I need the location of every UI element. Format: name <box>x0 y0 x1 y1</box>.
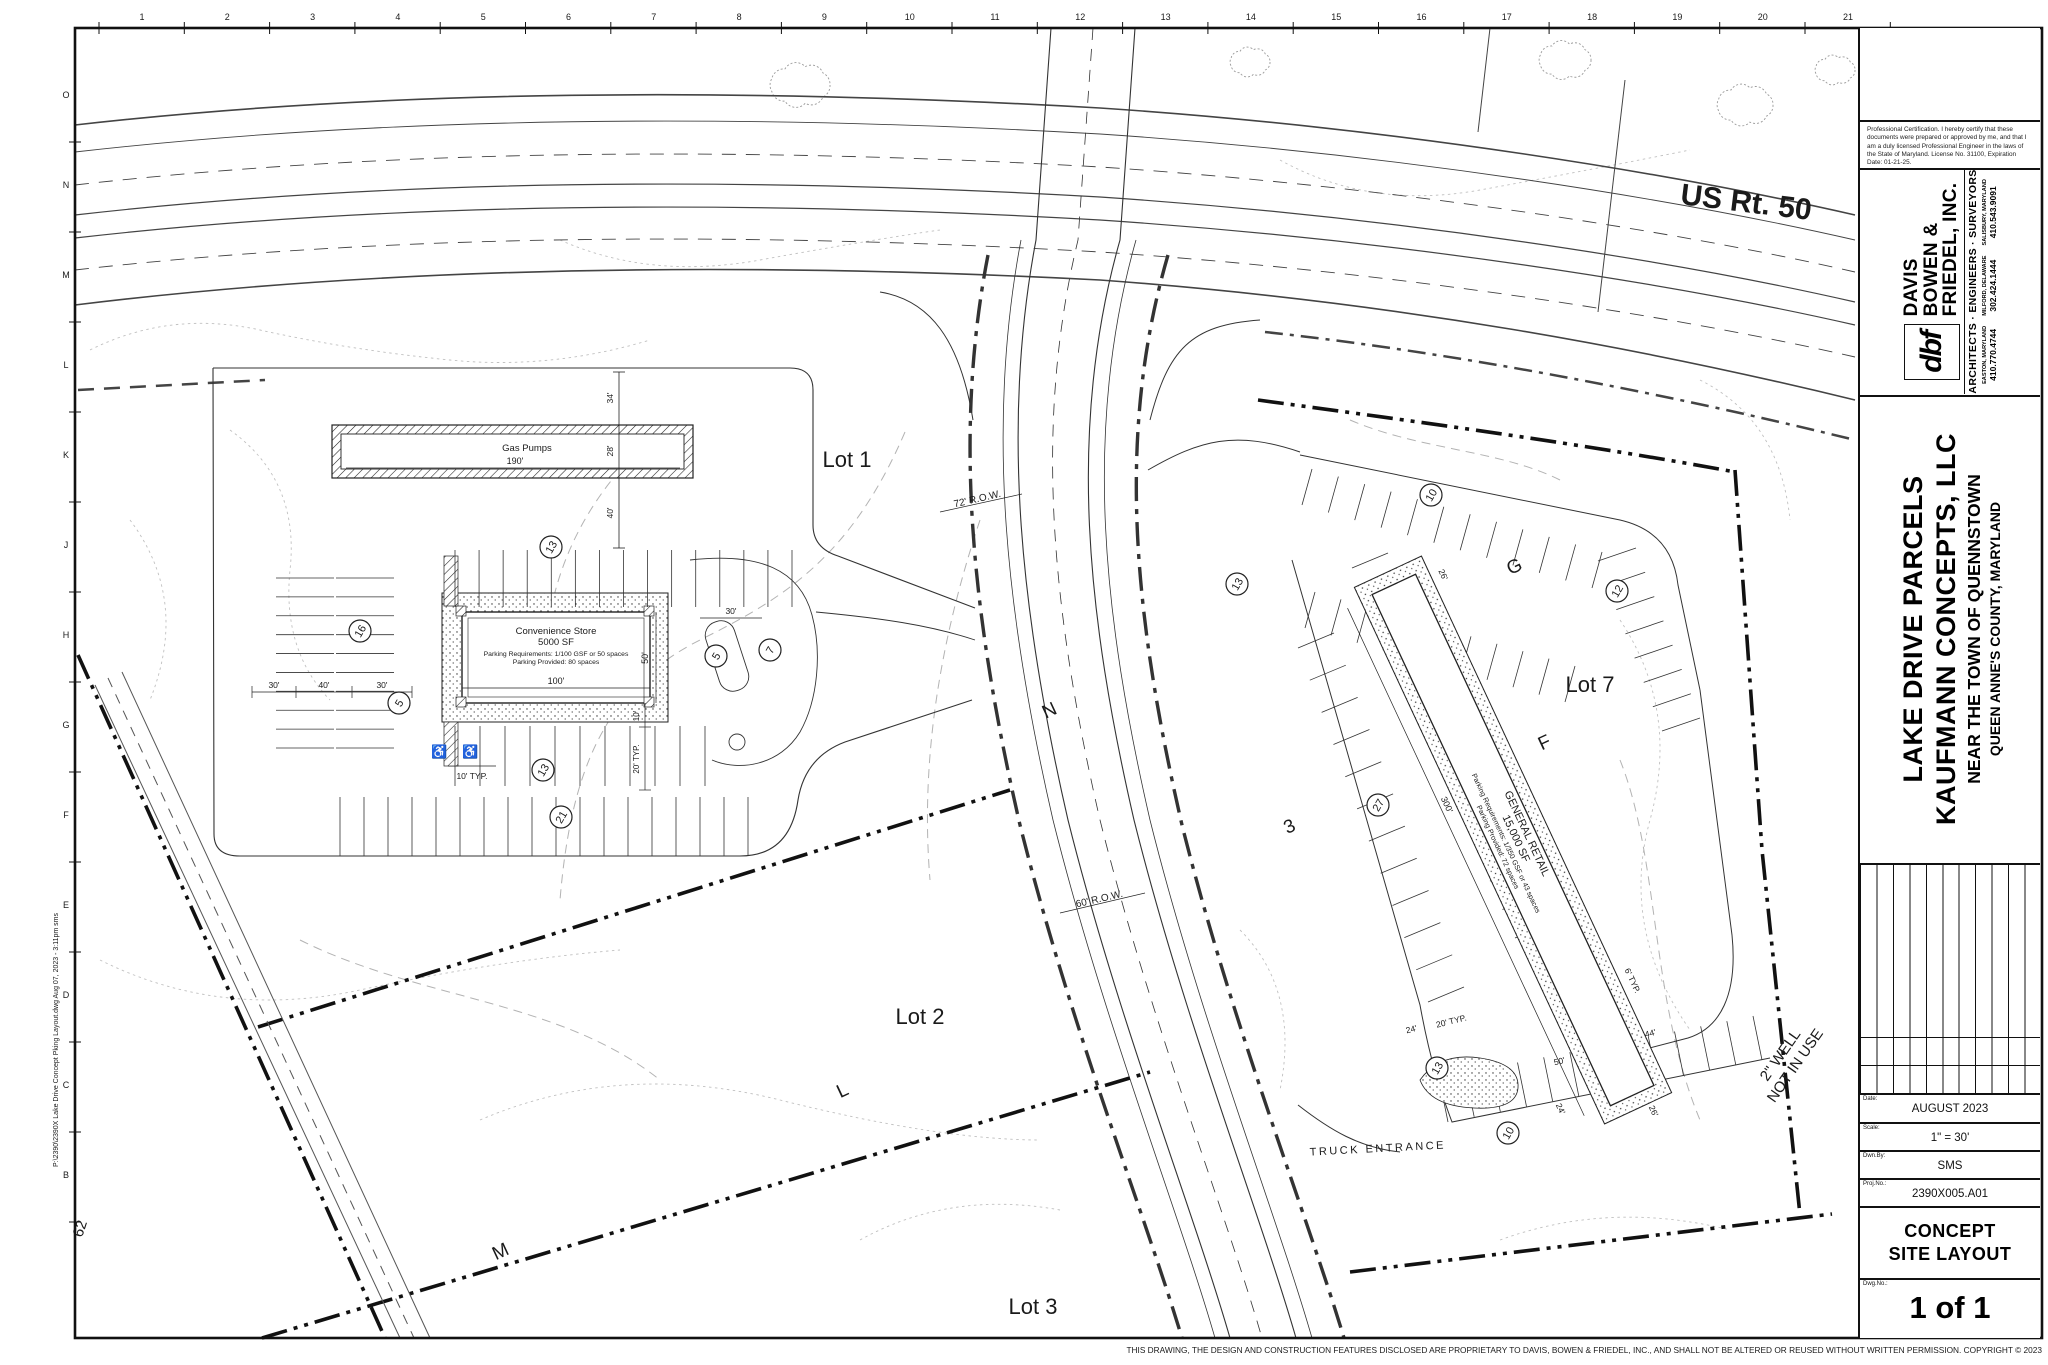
crosswalk-hatch-top <box>444 556 458 606</box>
convenience-store-building: Convenience Store 5000 SF Parking Requir… <box>442 593 668 722</box>
scale-label: Scale: <box>1863 1125 1880 1131</box>
border-col-number: 12 <box>1075 12 1085 22</box>
alignment-letter: 3 <box>1280 815 1298 839</box>
dim-50b: 50' <box>1553 1055 1567 1067</box>
border-col-number: 8 <box>737 12 742 22</box>
sheet-title-line2: SITE LAYOUT <box>1889 1244 2012 1265</box>
border-column-numbers: 123456789101112131415161718192021 <box>139 12 1853 22</box>
dim-10typ: 10' TYP. <box>456 771 487 781</box>
border-row-letter: K <box>63 450 69 460</box>
firm-name-3: FRIEDEL, INC. <box>1941 183 1960 317</box>
keynote-bubbles: 13165571321131012271310 <box>349 484 1628 1144</box>
file-path-note: P:\2390\2390X Lake Drive Concept Pking L… <box>53 913 60 1167</box>
certification-text: Professional Certification. I hereby cer… <box>1860 122 2040 172</box>
store-name: Convenience Store <box>516 626 597 637</box>
office-phone: 410.770.4744 <box>1988 326 1998 384</box>
store-parking-req: Parking Requirements: 1/100 GSF or 50 sp… <box>484 651 629 658</box>
dim-gas-length: 190' <box>507 456 524 466</box>
border-col-number: 5 <box>481 12 486 22</box>
dim-44: 44' <box>1644 1027 1658 1039</box>
handicap-icon: ♿ <box>431 744 447 759</box>
firm-name-2: BOWEN & <box>1922 183 1941 317</box>
project-number-label: Proj.No.: <box>1863 1181 1886 1187</box>
office-city: EASTON, MARYLAND <box>1982 326 1988 384</box>
border-row-letter: G <box>62 720 69 730</box>
drawing-number-label: Dwg.No.: <box>1863 1281 1888 1287</box>
office-city: SALISBURY, MARYLAND <box>1982 179 1988 245</box>
project-title-box: LAKE DRIVE PARCELS KAUFMANN CONCEPTS, LL… <box>1860 395 2040 863</box>
dim-6typ: 6' TYP. <box>1623 967 1643 995</box>
alignment-letter: M <box>489 1239 512 1265</box>
project-location-line1: NEAR THE TOWN OF QUENNSTOWN <box>1964 474 1985 784</box>
drawn-by-row: Dwn.By: SMS <box>1860 1150 2040 1178</box>
drawing-sheet: Gas Pumps 190' 34' 28' 40' Convenience S… <box>0 0 2048 1365</box>
border-col-number: 13 <box>1161 12 1171 22</box>
dim-100: 100' <box>548 676 565 686</box>
retail-building: GENERAL RETAIL 15,000 SF Parking Require… <box>1341 549 1694 1144</box>
tree-outline <box>1717 84 1773 126</box>
date-label: Date: <box>1863 1096 1877 1102</box>
handicap-icon: ♿ <box>462 744 478 759</box>
lot3-label: Lot 3 <box>1009 1294 1058 1319</box>
island-circle <box>729 734 745 750</box>
firm-offices: EASTON, MARYLAND 410.770.4744 MILFORD, D… <box>1982 179 1998 384</box>
border-row-letter: M <box>62 270 70 280</box>
office-phone: 410.543.9091 <box>1988 179 1998 245</box>
border-row-letter: L <box>63 360 68 370</box>
footer-disclaimer: THIS DRAWING, THE DESIGN AND CONSTRUCTIO… <box>1126 1345 2042 1355</box>
svg-text:72' R.O.W.: 72' R.O.W. <box>953 489 1002 511</box>
border-col-number: 17 <box>1502 12 1512 22</box>
drawn-by-value: SMS <box>1860 1160 2040 1172</box>
date-row: Date: AUGUST 2023 <box>1860 1093 2040 1122</box>
border-col-number: 20 <box>1758 12 1768 22</box>
lot1-label: Lot 1 <box>823 447 872 472</box>
border-col-number: 4 <box>395 12 400 22</box>
border-col-number: 7 <box>651 12 656 22</box>
alignment-letter: G <box>1504 554 1526 579</box>
border-col-number: 9 <box>822 12 827 22</box>
drawn-by-label: Dwn.By: <box>1863 1153 1885 1159</box>
lake-drive-road <box>880 28 1344 1338</box>
scale-row: Scale: 1" = 30' <box>1860 1122 2040 1150</box>
contour-62-label: 62 <box>70 1218 91 1239</box>
border-col-number: 14 <box>1246 12 1256 22</box>
dim-20typ-b: 20' TYP. <box>1435 1012 1468 1029</box>
store-area: 5000 SF <box>538 637 574 648</box>
dim-28: 28' <box>605 445 615 456</box>
dbf-logo: dbf <box>1904 324 1960 380</box>
parking-stalls <box>276 469 1762 1122</box>
alignment-letter: L <box>833 1079 851 1103</box>
border-col-number: 2 <box>225 12 230 22</box>
border-row-letter: O <box>62 90 69 100</box>
border-row-letter: C <box>63 1080 70 1090</box>
border-col-number: 18 <box>1587 12 1597 22</box>
title-block: Professional Certification. I hereby cer… <box>1858 28 2040 1338</box>
border-col-number: 10 <box>905 12 915 22</box>
certification-box: Professional Certification. I hereby cer… <box>1860 120 2040 168</box>
border-row-letter: D <box>63 990 70 1000</box>
dim-10: 10' <box>632 710 641 721</box>
firm-tagline: ARCHITECTS · ENGINEERS · SURVEYORS <box>1964 169 1979 393</box>
side-road <box>95 672 430 1338</box>
alignment-letter: N <box>1039 699 1060 724</box>
site-plan-canvas: Gas Pumps 190' 34' 28' 40' Convenience S… <box>0 0 2048 1365</box>
dim-50: 50' <box>640 652 650 664</box>
truck-entrance-label: TRUCK ENTRANCE <box>1309 1139 1446 1158</box>
border-row-letter: J <box>64 540 69 550</box>
project-name-line2: KAUFMANN CONCEPTS, LLC <box>1931 433 1962 825</box>
dim-26a: 26' <box>1436 567 1450 582</box>
border-row-letter: H <box>63 630 70 640</box>
dim-34: 34' <box>605 392 615 403</box>
office-phone: 302.424.1444 <box>1988 256 1998 316</box>
dim-40v: 40' <box>605 507 615 518</box>
border-row-letter: E <box>63 900 69 910</box>
project-name-line1: LAKE DRIVE PARCELS <box>1898 475 1929 782</box>
border-col-number: 3 <box>310 12 315 22</box>
dim-40h: 40' <box>318 680 329 690</box>
scale-value: 1" = 30' <box>1860 1132 2040 1144</box>
border-col-number: 16 <box>1416 12 1426 22</box>
dim-24b: 24' <box>1554 1102 1568 1117</box>
tree-outline <box>1815 55 1855 85</box>
date-value: AUGUST 2023 <box>1860 1103 2040 1115</box>
drawing-number-value: 1 of 1 <box>1860 1290 2040 1326</box>
store-parking-prov: Parking Provided: 80 spaces <box>513 659 600 666</box>
border-col-number: 15 <box>1331 12 1341 22</box>
border-col-number: 21 <box>1843 12 1853 22</box>
tree-outline <box>1230 47 1270 77</box>
contour-lines <box>90 150 1790 1240</box>
border-col-number: 19 <box>1672 12 1682 22</box>
firm-name-1: DAVIS <box>1902 183 1921 317</box>
border-col-number: 6 <box>566 12 571 22</box>
border-row-letter: B <box>63 1170 69 1180</box>
gas-canopy: Gas Pumps 190' <box>332 425 693 478</box>
alignment-letter: F <box>1535 731 1554 755</box>
office-city: MILFORD, DELAWARE <box>1982 256 1988 316</box>
border-col-number: 11 <box>990 12 999 22</box>
project-location-line2: QUEEN ANNE'S COUNTY, MARYLAND <box>1987 502 2003 756</box>
border-col-number: 1 <box>139 12 144 22</box>
property-boundaries <box>78 400 1832 1338</box>
drawing-number-box: Dwg.No.: 1 of 1 <box>1860 1278 2040 1338</box>
highway-label: US Rt. 50 <box>1679 178 1814 227</box>
sheet-title-box: CONCEPT SITE LAYOUT <box>1860 1206 2040 1278</box>
dim-30c: 30' <box>725 606 736 616</box>
border-row-letter: N <box>63 180 70 190</box>
sheet-border <box>75 28 2042 1338</box>
project-number-row: Proj.No.: 2390X005.A01 <box>1860 1178 2040 1206</box>
dim-30a: 30' <box>268 680 279 690</box>
border-row-letter: F <box>63 810 69 820</box>
tree-outline <box>770 63 830 108</box>
firm-box: dbf DAVIS BOWEN & FRIEDEL, INC. ARCHITEC… <box>1860 168 2040 395</box>
dim-24a: 24' <box>1405 1023 1419 1035</box>
dim-20typ-a: 20' TYP. <box>632 744 641 773</box>
gas-canopy-label: Gas Pumps <box>502 443 552 454</box>
titleblock-blank-box <box>1860 28 2040 120</box>
dim-30b: 30' <box>376 680 387 690</box>
sheet-title-line1: CONCEPT <box>1904 1221 1996 1242</box>
highway-us50 <box>75 28 1855 440</box>
border-row-letters: ONMLKJHGFEDCB <box>62 90 70 1180</box>
tree-outline <box>1539 41 1591 80</box>
tree-outlines <box>770 41 1855 126</box>
revision-block <box>1860 863 2040 1093</box>
project-number-value: 2390X005.A01 <box>1860 1188 2040 1200</box>
dim-26b: 26' <box>1647 1104 1661 1119</box>
lot2-label: Lot 2 <box>896 1004 945 1029</box>
lot7-label: Lot 7 <box>1566 672 1615 697</box>
